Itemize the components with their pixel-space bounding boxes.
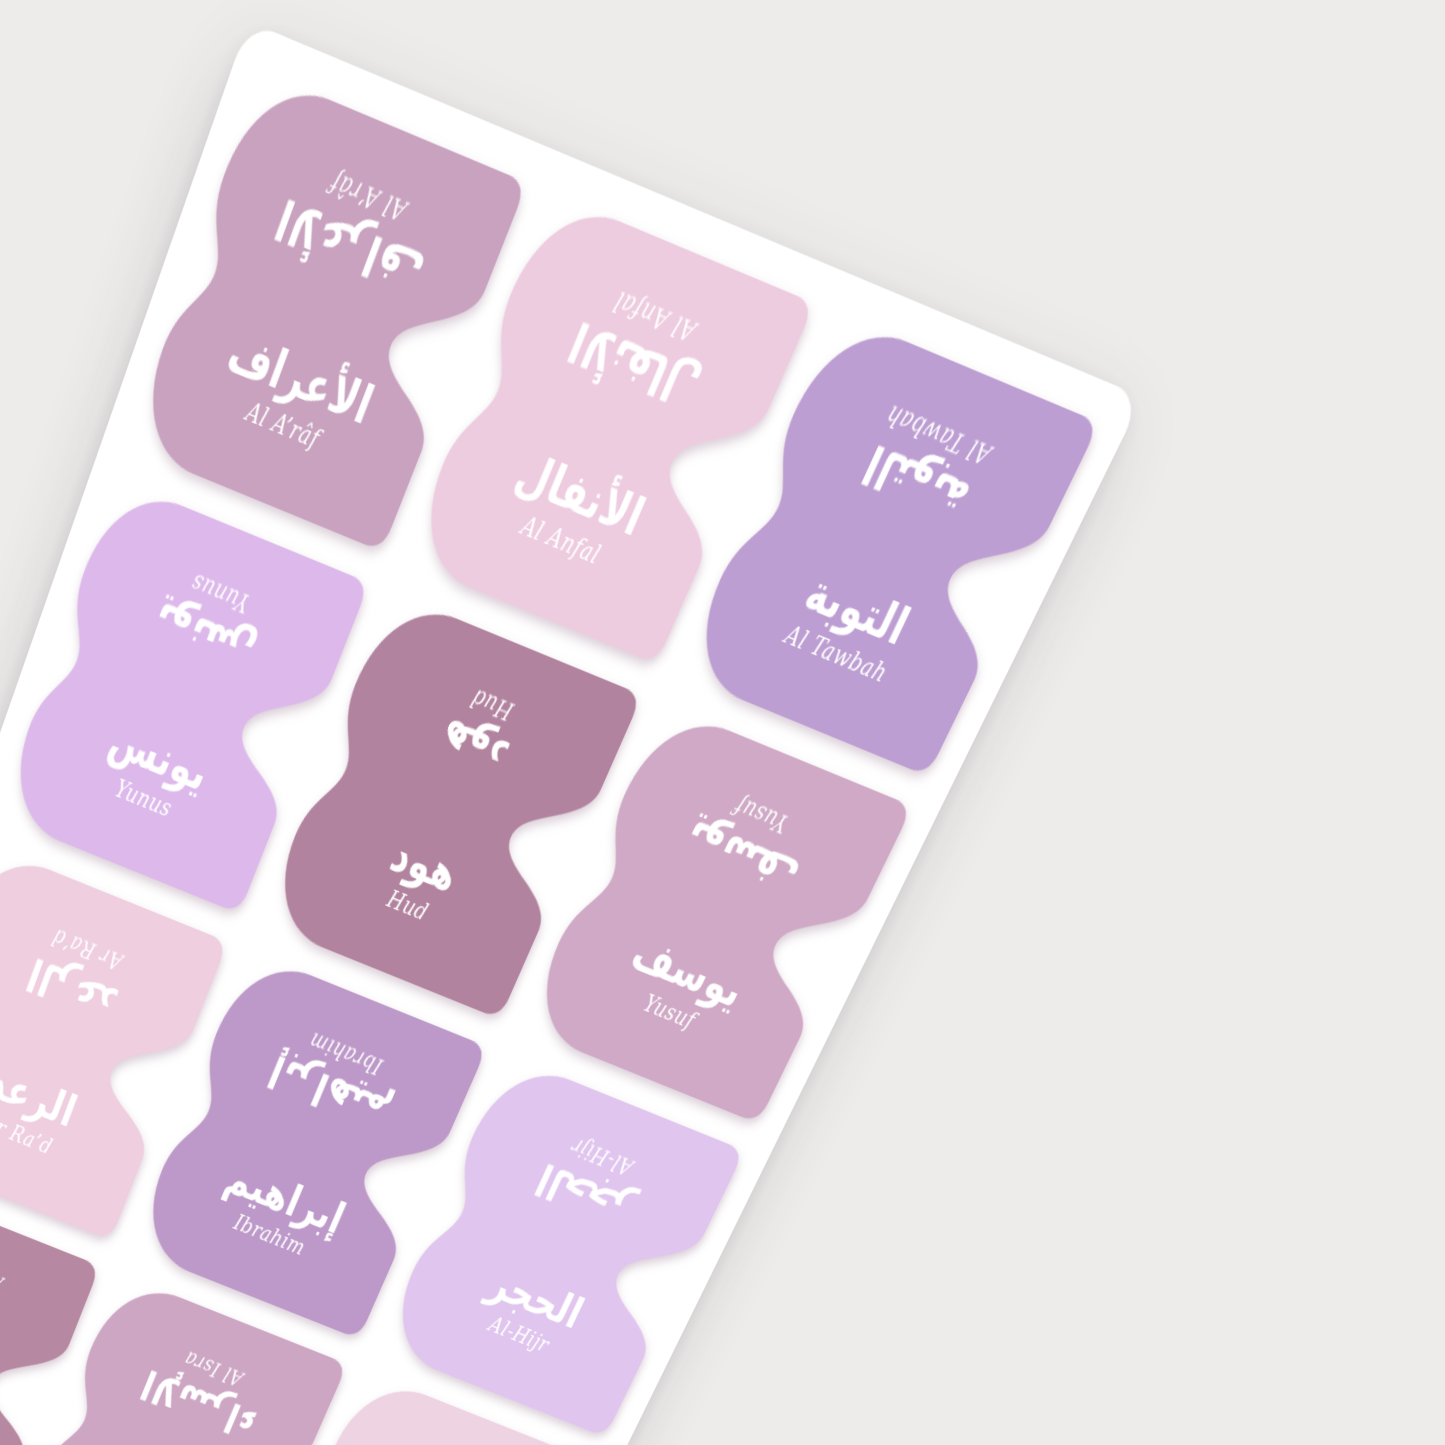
- sticker-sheet: الأعراف Al A’râf الأعراف Al A’râf الأنفا…: [0, 21, 1143, 1445]
- canvas-background: الأعراف Al A’râf الأعراف Al A’râf الأنفا…: [0, 0, 1445, 1445]
- tab-grid: الأعراف Al A’râf الأعراف Al A’râf الأنفا…: [0, 21, 1143, 1445]
